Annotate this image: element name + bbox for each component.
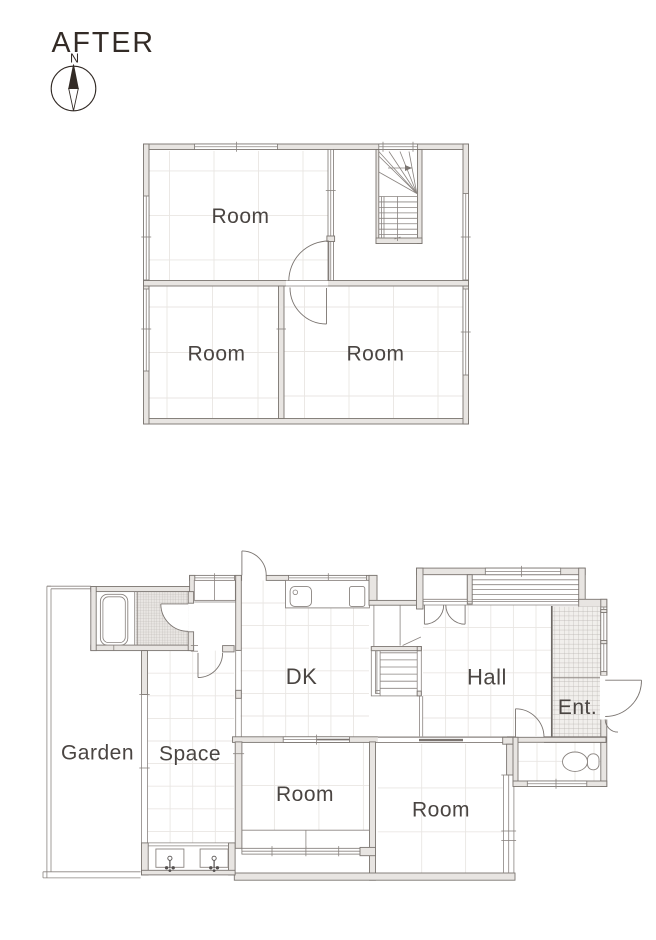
svg-text:Ent.: Ent. [558, 696, 597, 719]
svg-text:DK: DK [286, 664, 318, 689]
svg-text:Room: Room [412, 799, 470, 822]
svg-text:Room: Room [187, 343, 245, 366]
svg-text:Room: Room [211, 205, 269, 228]
svg-text:Hall: Hall [467, 665, 507, 690]
svg-text:Room: Room [346, 343, 404, 366]
svg-text:Room: Room [276, 783, 334, 806]
svg-text:Space: Space [159, 743, 221, 766]
svg-text:Garden: Garden [61, 742, 134, 765]
svg-text:N: N [70, 52, 79, 66]
svg-text:AFTER: AFTER [52, 27, 155, 59]
